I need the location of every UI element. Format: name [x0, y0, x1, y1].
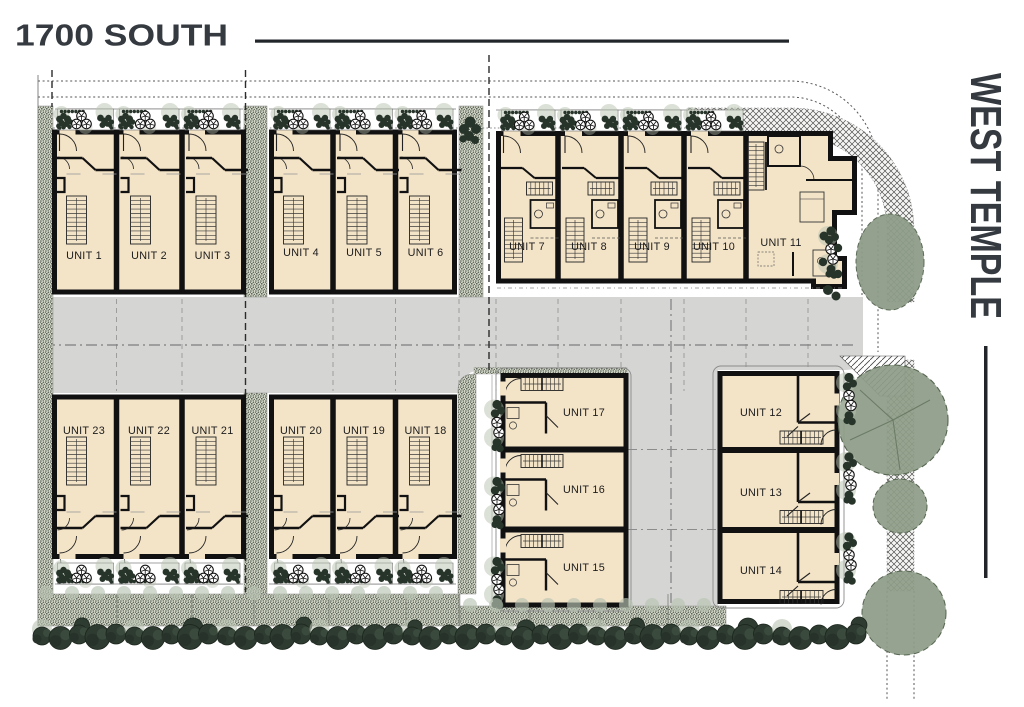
- svg-text:UNIT 11: UNIT 11: [760, 237, 801, 249]
- svg-text:UNIT 6: UNIT 6: [408, 247, 444, 259]
- svg-text:UNIT 18: UNIT 18: [404, 425, 446, 437]
- svg-text:UNIT 16: UNIT 16: [563, 484, 605, 496]
- svg-text:UNIT 15: UNIT 15: [563, 562, 605, 574]
- svg-text:UNIT 10: UNIT 10: [693, 241, 735, 253]
- svg-text:UNIT 1: UNIT 1: [66, 250, 102, 262]
- svg-text:UNIT 7: UNIT 7: [509, 241, 545, 253]
- svg-text:UNIT 5: UNIT 5: [346, 247, 382, 259]
- svg-text:UNIT 14: UNIT 14: [740, 565, 782, 577]
- svg-text:UNIT 17: UNIT 17: [563, 407, 605, 419]
- svg-text:UNIT 19: UNIT 19: [343, 425, 385, 437]
- svg-text:UNIT 8: UNIT 8: [571, 241, 607, 253]
- svg-text:UNIT 9: UNIT 9: [634, 241, 670, 253]
- svg-text:UNIT 12: UNIT 12: [740, 407, 782, 419]
- svg-text:1700 SOUTH: 1700 SOUTH: [15, 18, 228, 53]
- svg-text:UNIT 2: UNIT 2: [131, 250, 167, 262]
- svg-text:UNIT 22: UNIT 22: [128, 425, 170, 437]
- svg-text:UNIT 20: UNIT 20: [280, 425, 322, 437]
- svg-text:UNIT 13: UNIT 13: [740, 487, 782, 499]
- svg-text:WEST TEMPLE: WEST TEMPLE: [961, 73, 1010, 319]
- svg-text:UNIT 23: UNIT 23: [63, 425, 105, 437]
- svg-text:UNIT 4: UNIT 4: [283, 247, 319, 259]
- svg-text:UNIT 3: UNIT 3: [195, 250, 231, 262]
- svg-text:UNIT 21: UNIT 21: [191, 425, 233, 437]
